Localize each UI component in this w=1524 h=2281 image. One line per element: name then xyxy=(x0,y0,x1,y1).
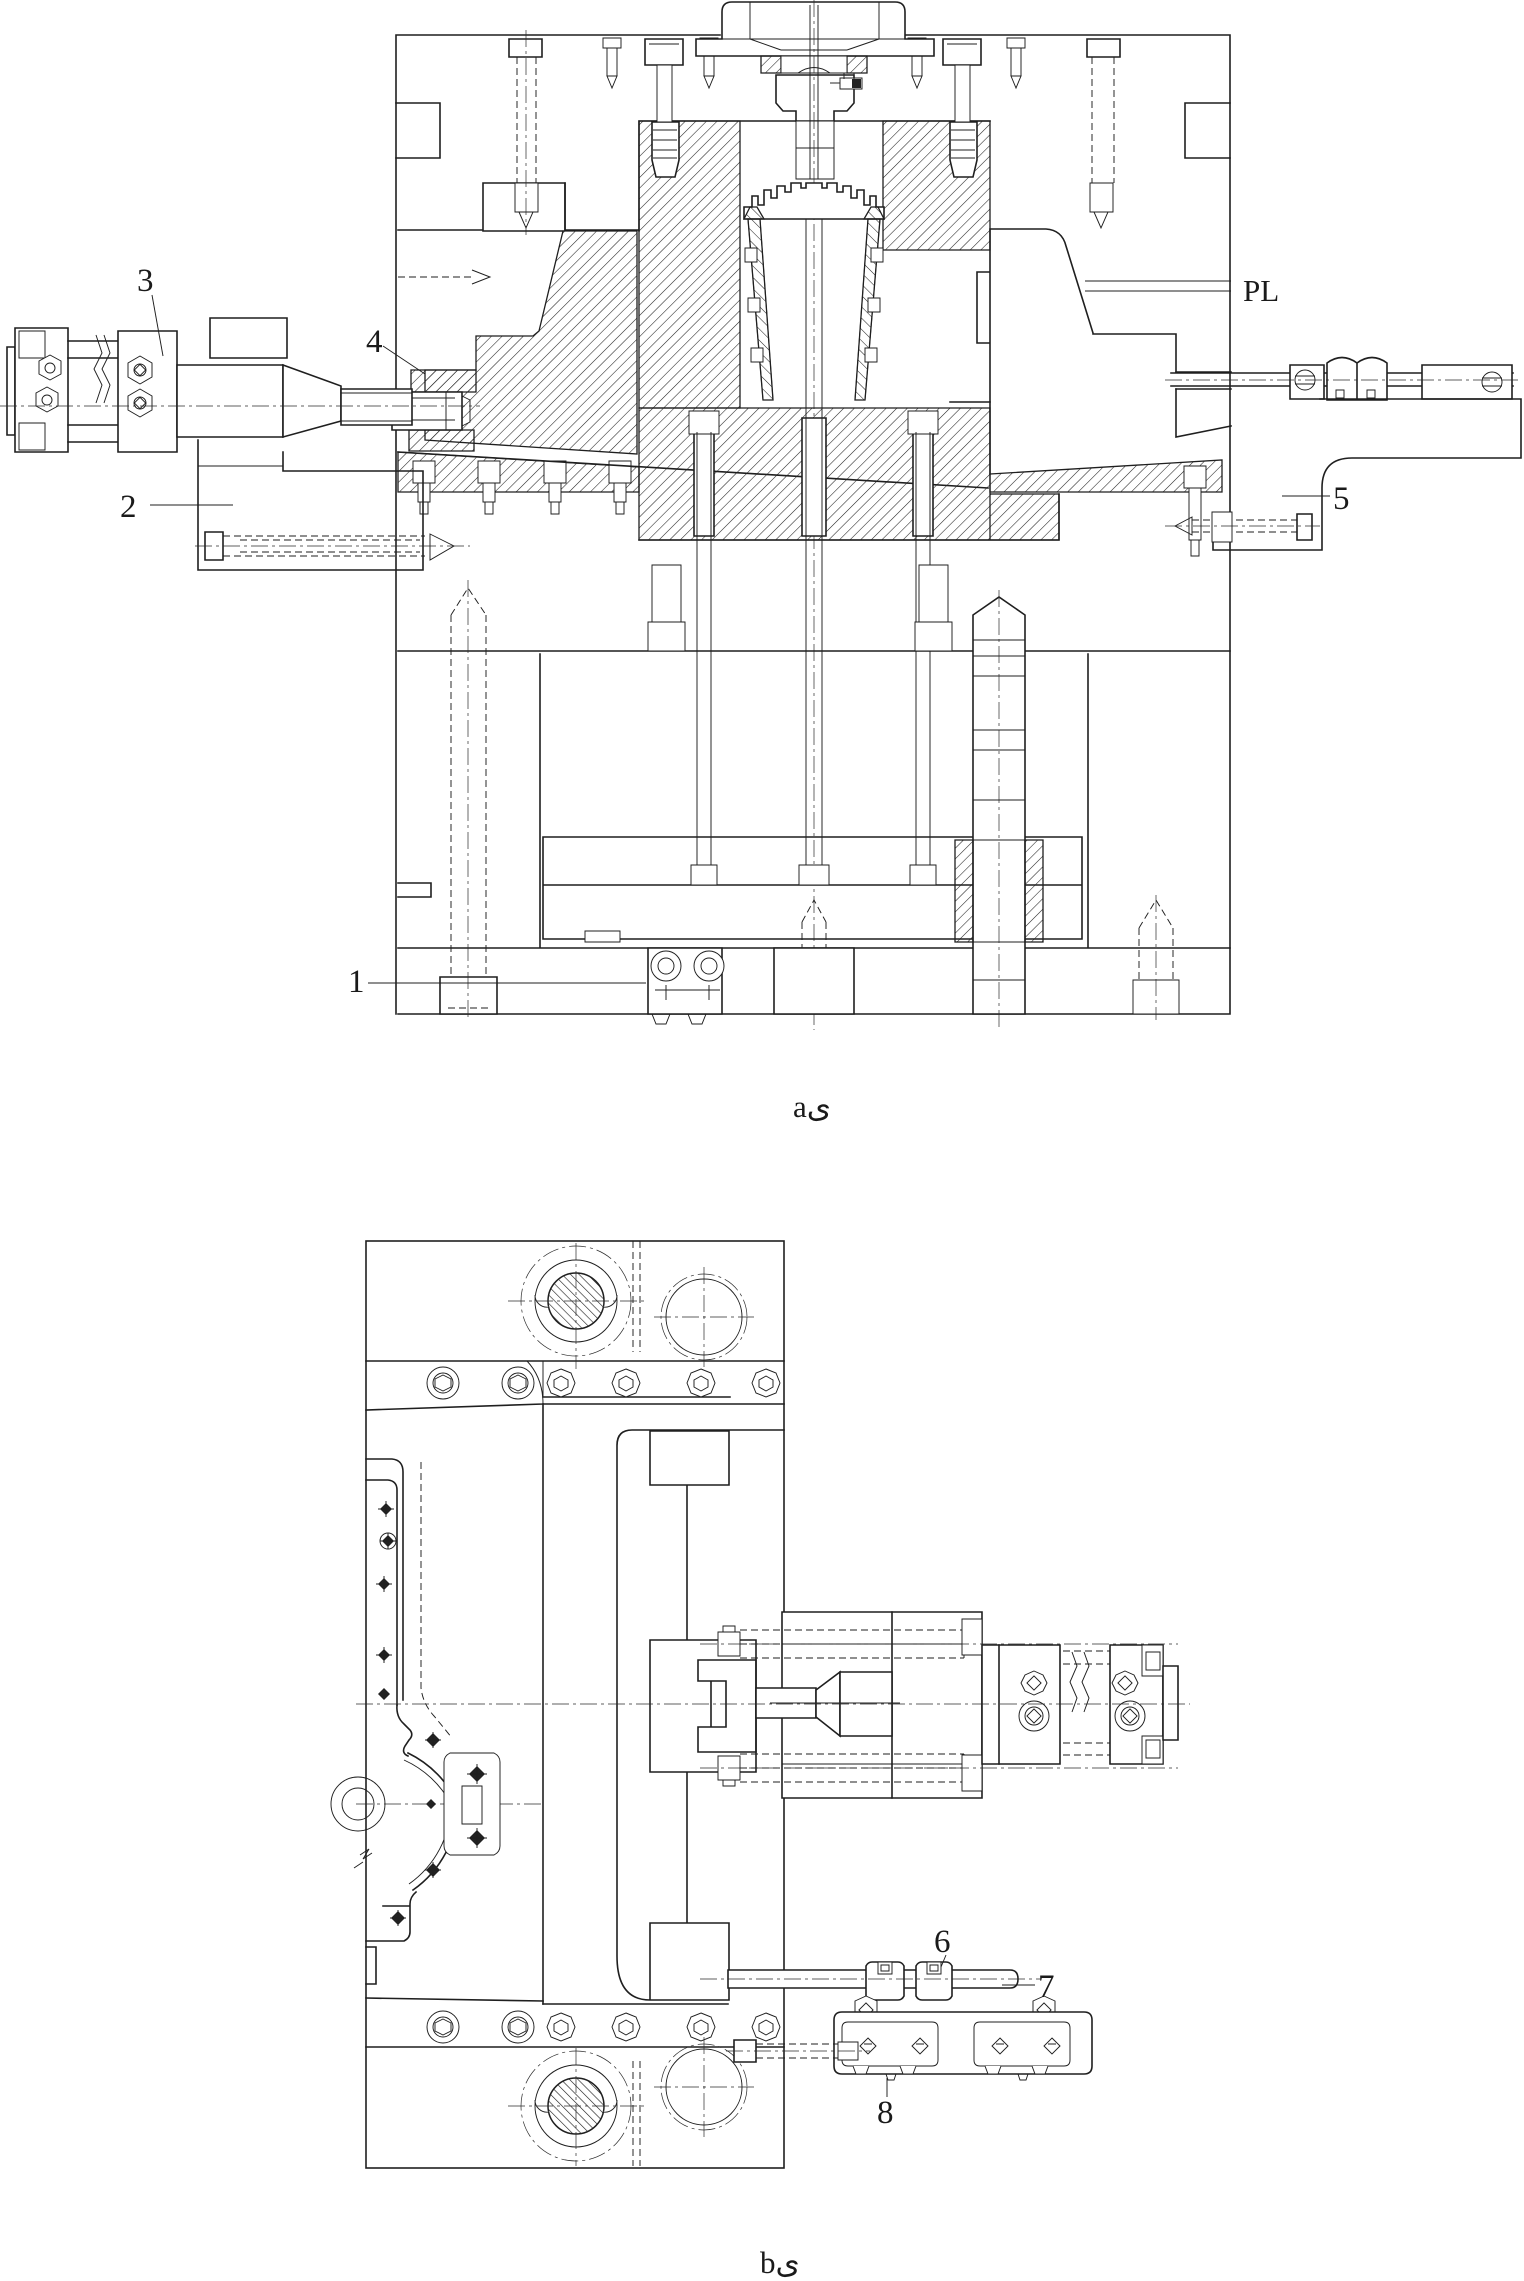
svg-text:1: 1 xyxy=(348,964,365,1000)
svg-text:5: 5 xyxy=(1333,481,1350,517)
svg-text:6: 6 xyxy=(934,1924,951,1960)
svg-text:3: 3 xyxy=(137,263,154,299)
svg-text:PL: PL xyxy=(1243,273,1279,308)
svg-text:2: 2 xyxy=(120,489,137,525)
svg-text:bى: bى xyxy=(760,2245,800,2280)
svg-text:aى: aى xyxy=(793,1089,831,1124)
svg-text:8: 8 xyxy=(877,2095,894,2131)
svg-text:7: 7 xyxy=(1038,1969,1055,2005)
svg-text:4: 4 xyxy=(366,324,383,360)
